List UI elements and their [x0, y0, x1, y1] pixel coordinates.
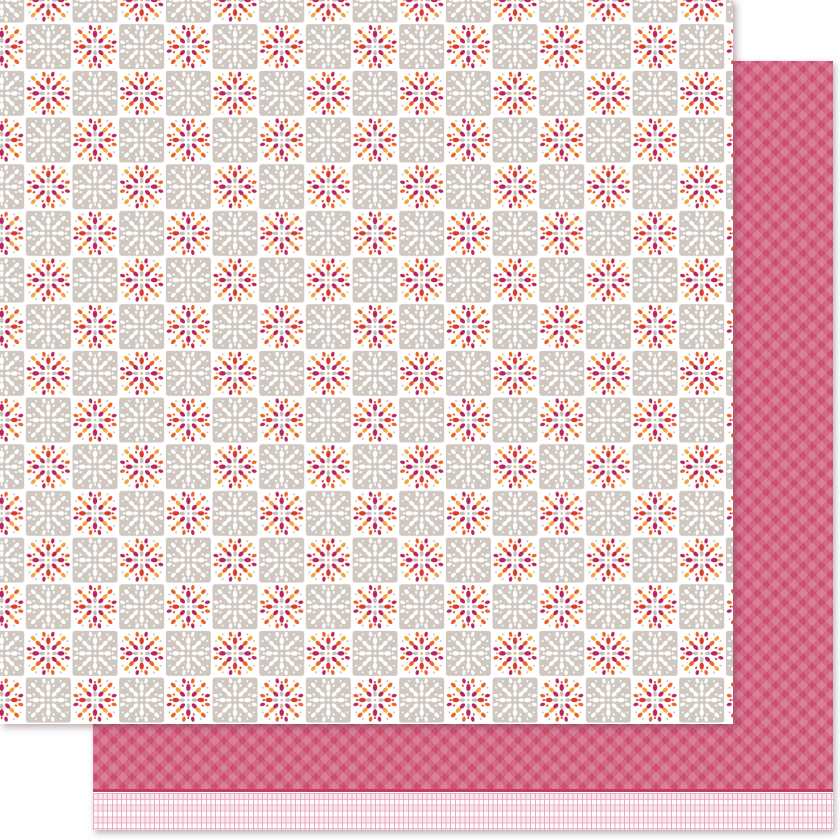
front-sheet-paper [0, 0, 733, 724]
patchwork-pattern [0, 0, 733, 724]
plaid-border-strip [93, 793, 833, 830]
product-mockup [0, 0, 840, 840]
page: { "product": { "front_sheet": { "pattern… [0, 0, 840, 840]
